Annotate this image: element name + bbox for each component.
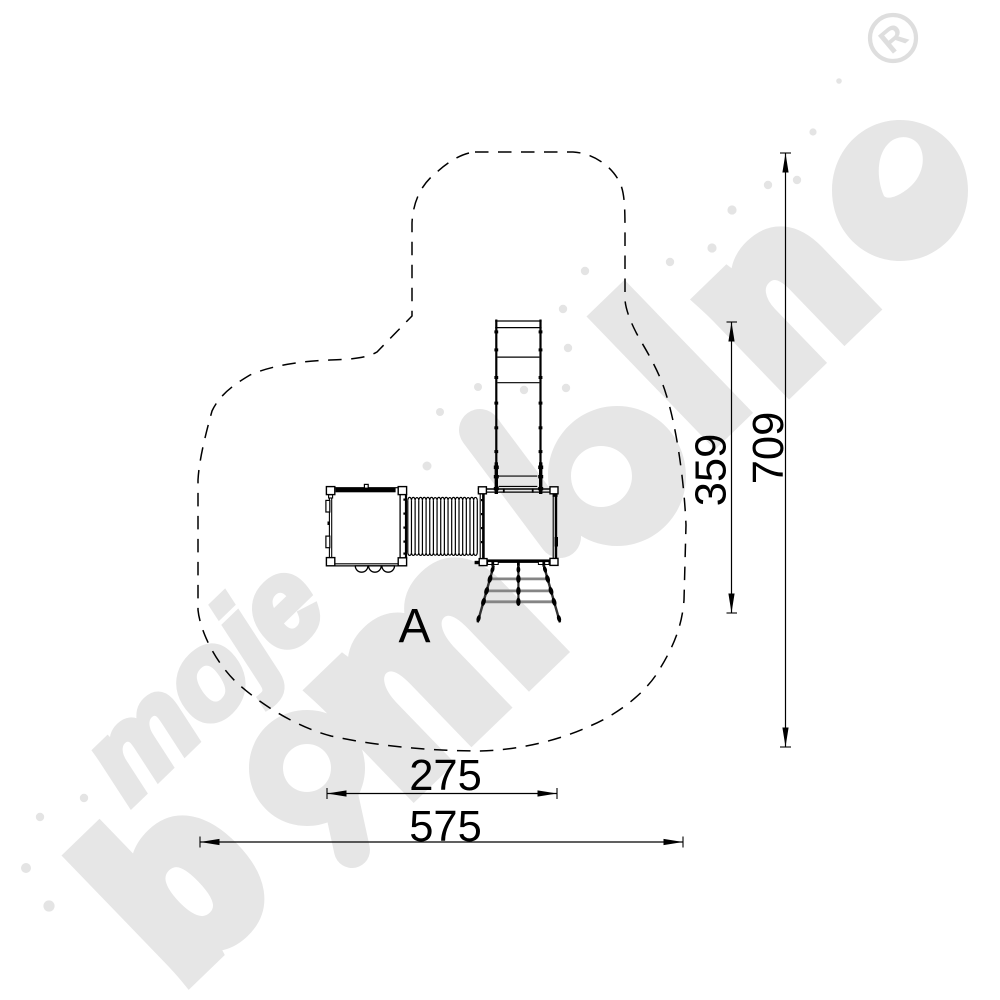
svg-text:709: 709: [745, 412, 793, 485]
svg-text:275: 275: [409, 752, 482, 800]
svg-text:A: A: [398, 600, 430, 653]
svg-text:575: 575: [409, 803, 482, 851]
svg-text:359: 359: [688, 434, 736, 507]
